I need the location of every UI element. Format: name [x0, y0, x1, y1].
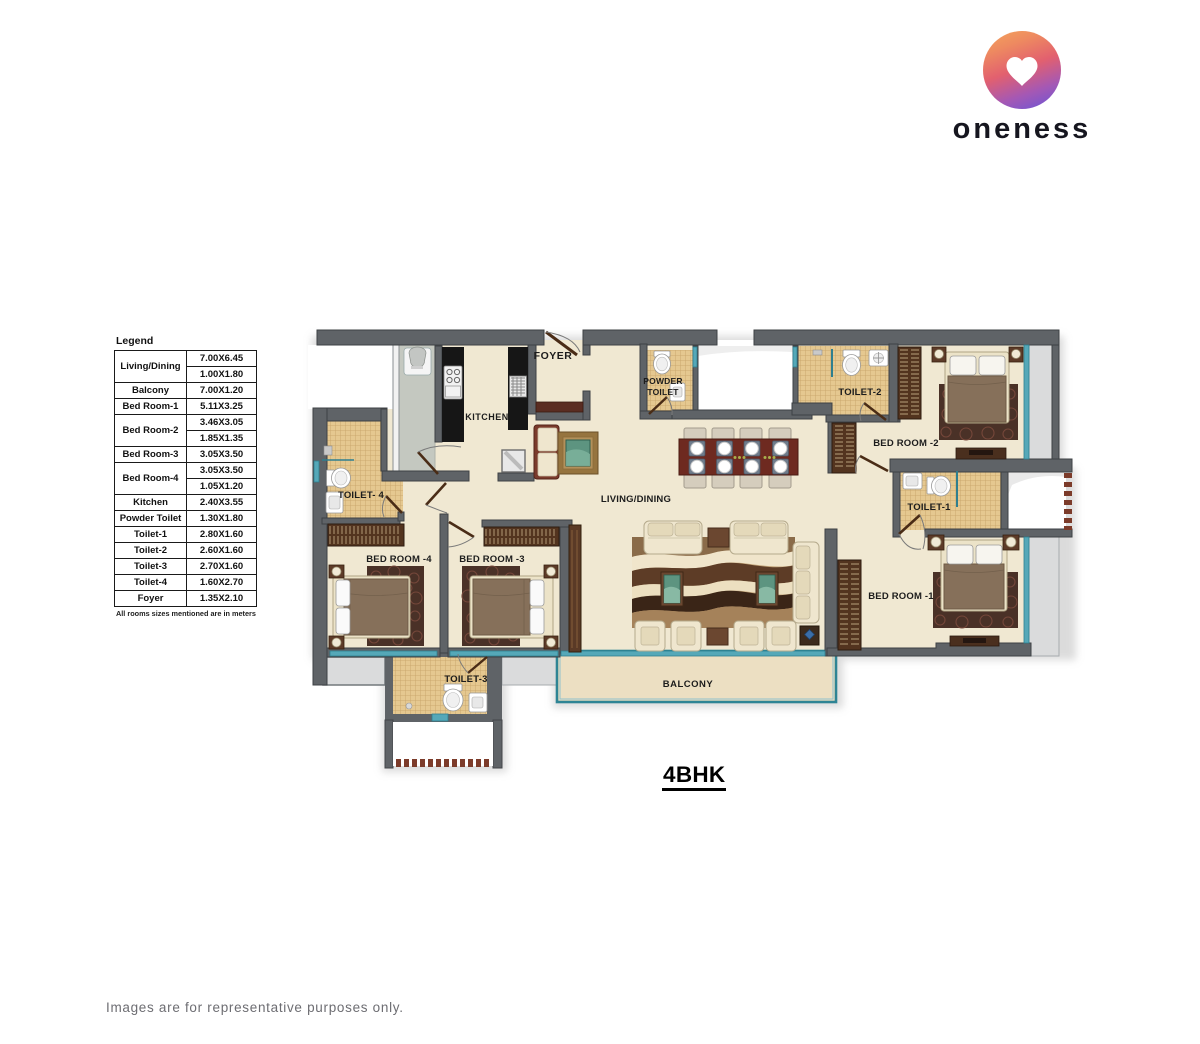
svg-text:KITCHEN: KITCHEN [465, 412, 509, 422]
svg-text:FOYER: FOYER [534, 350, 573, 362]
svg-text:BED ROOM -1: BED ROOM -1 [868, 591, 934, 602]
svg-text:TOILET-2: TOILET-2 [838, 387, 881, 398]
svg-text:LIVING/DINING: LIVING/DINING [601, 494, 671, 505]
svg-text:TOILET-1: TOILET-1 [907, 502, 951, 513]
svg-text:POWDER: POWDER [643, 376, 682, 386]
svg-text:BALCONY: BALCONY [663, 679, 714, 690]
svg-text:TOILET-3: TOILET-3 [444, 674, 487, 685]
svg-text:BED ROOM -4: BED ROOM -4 [366, 554, 432, 565]
svg-text:BED ROOM -2: BED ROOM -2 [873, 438, 939, 449]
svg-text:BED ROOM -3: BED ROOM -3 [459, 554, 525, 565]
svg-text:TOILET- 4: TOILET- 4 [338, 490, 384, 501]
svg-text:TOILET: TOILET [647, 387, 679, 397]
